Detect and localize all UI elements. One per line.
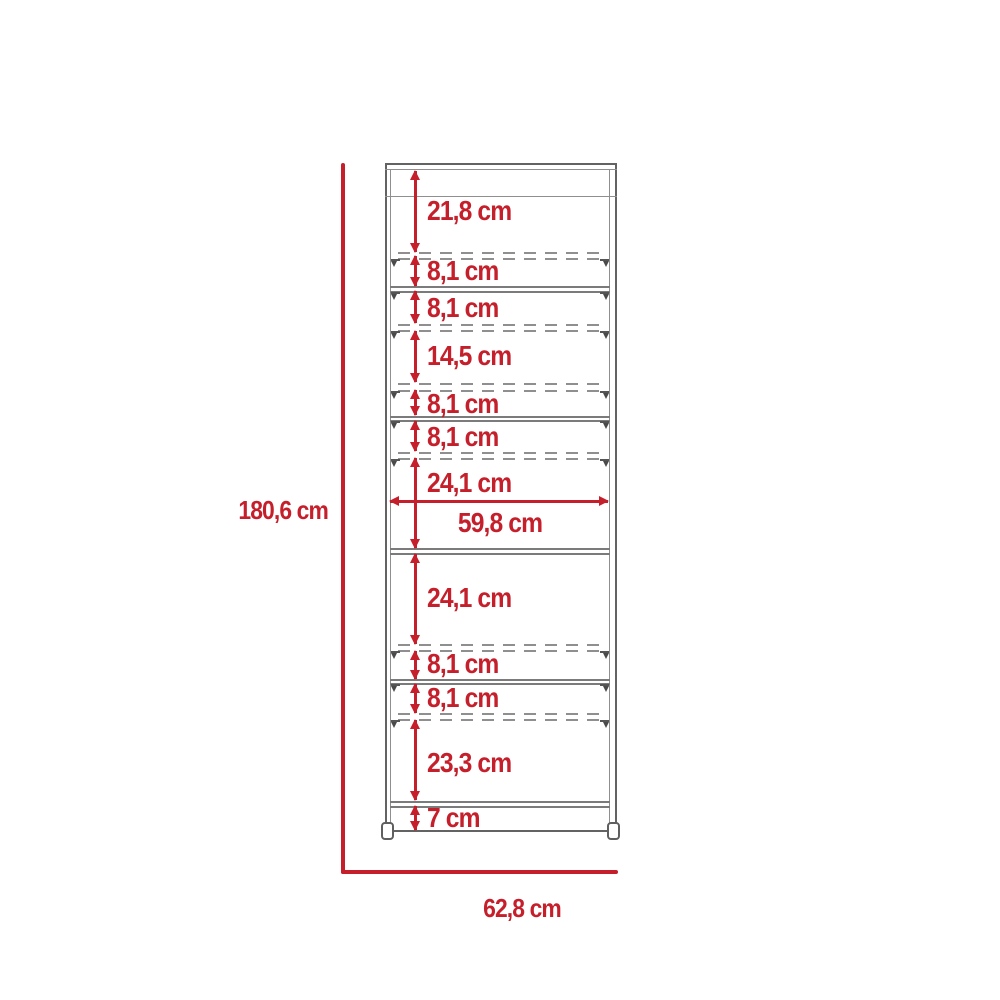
segment-12-label: 7 cm bbox=[427, 804, 480, 832]
segment-9-label: 8,1 cm bbox=[427, 650, 498, 678]
cabinet-left-edge bbox=[385, 163, 387, 832]
cabinet-right-edge bbox=[615, 163, 617, 832]
dashed-shelf-line bbox=[398, 452, 601, 454]
segment-8-arrow bbox=[414, 554, 417, 644]
cabinet-foot-left bbox=[381, 822, 394, 840]
shelf-pin-icon bbox=[391, 421, 400, 423]
shelf-pin-icon bbox=[600, 259, 609, 261]
segment-3-arrow bbox=[414, 291, 417, 323]
shelf-pin-icon bbox=[600, 720, 609, 722]
segment-11-arrow bbox=[414, 720, 417, 800]
shelf-pin-icon bbox=[391, 259, 400, 261]
shelf-line bbox=[390, 806, 610, 808]
shelf-pin-icon bbox=[391, 720, 400, 722]
shelf-line bbox=[390, 420, 610, 422]
segment-6-label: 8,1 cm bbox=[427, 423, 498, 451]
segment-10-arrow bbox=[414, 684, 417, 713]
segment-12-arrow bbox=[414, 806, 417, 830]
segment-5-arrow bbox=[414, 390, 417, 415]
dashed-shelf-line bbox=[398, 324, 601, 326]
dashed-shelf-line bbox=[398, 252, 601, 254]
dashed-shelf-line bbox=[398, 458, 601, 460]
segment-7-arrow bbox=[414, 458, 417, 548]
dashed-shelf-line bbox=[398, 644, 601, 646]
shelf-line bbox=[390, 286, 610, 288]
shelf-pin-icon bbox=[391, 292, 400, 294]
height-extent-line bbox=[341, 163, 345, 874]
segment-2-label: 8,1 cm bbox=[427, 257, 498, 285]
shelf-line bbox=[390, 548, 610, 550]
segment-1-label: 21,8 cm bbox=[427, 197, 511, 225]
overall-width-label: 62,8 cm bbox=[469, 895, 575, 921]
cabinet-right-inner-edge bbox=[609, 169, 610, 830]
segment-6-arrow bbox=[414, 421, 417, 451]
shelf-pin-icon bbox=[600, 331, 609, 333]
dashed-shelf-line bbox=[398, 330, 601, 332]
shelf-pin-icon bbox=[391, 331, 400, 333]
cabinet-foot-right bbox=[607, 822, 620, 840]
overall-height-label: 180,6 cm bbox=[198, 497, 328, 523]
segment-4-arrow bbox=[414, 331, 417, 382]
segment-4-label: 14,5 cm bbox=[427, 342, 511, 370]
shelf-pin-icon bbox=[391, 391, 400, 393]
shelf-line bbox=[390, 679, 610, 681]
shelf-line bbox=[390, 553, 610, 555]
cabinet-top-edge bbox=[385, 163, 617, 165]
shelf-pin-icon bbox=[600, 421, 609, 423]
shelf-pin-icon bbox=[600, 684, 609, 686]
shelf-line bbox=[390, 416, 610, 418]
segment-3-label: 8,1 cm bbox=[427, 294, 498, 322]
width-extent-line bbox=[341, 870, 618, 874]
interior-width-arrow bbox=[390, 500, 608, 503]
dashed-shelf-line bbox=[398, 719, 601, 721]
shelf-pin-icon bbox=[600, 391, 609, 393]
shelf-pin-icon bbox=[600, 651, 609, 653]
shelf-pin-icon bbox=[391, 459, 400, 461]
shelf-line bbox=[390, 801, 610, 803]
dashed-shelf-line bbox=[398, 713, 601, 715]
segment-5-label: 8,1 cm bbox=[427, 390, 498, 418]
segment-9-arrow bbox=[414, 651, 417, 679]
segment-7-label: 24,1 cm bbox=[427, 469, 511, 497]
interior-width-label: 59,8 cm bbox=[438, 509, 561, 537]
shelf-pin-icon bbox=[391, 651, 400, 653]
furniture-dimension-diagram: 180,6 cm 62,8 cm bbox=[0, 0, 1000, 1000]
shelf-line bbox=[390, 683, 610, 685]
shelf-line bbox=[390, 291, 610, 293]
segment-2-arrow bbox=[414, 256, 417, 286]
shelf-pin-icon bbox=[600, 292, 609, 294]
segment-11-label: 23,3 cm bbox=[427, 749, 511, 777]
shelf-pin-icon bbox=[600, 459, 609, 461]
segment-10-label: 8,1 cm bbox=[427, 684, 498, 712]
segment-1-arrow bbox=[414, 171, 417, 252]
dashed-shelf-line bbox=[398, 383, 601, 385]
shelf-pin-icon bbox=[391, 684, 400, 686]
segment-8-label: 24,1 cm bbox=[427, 584, 511, 612]
